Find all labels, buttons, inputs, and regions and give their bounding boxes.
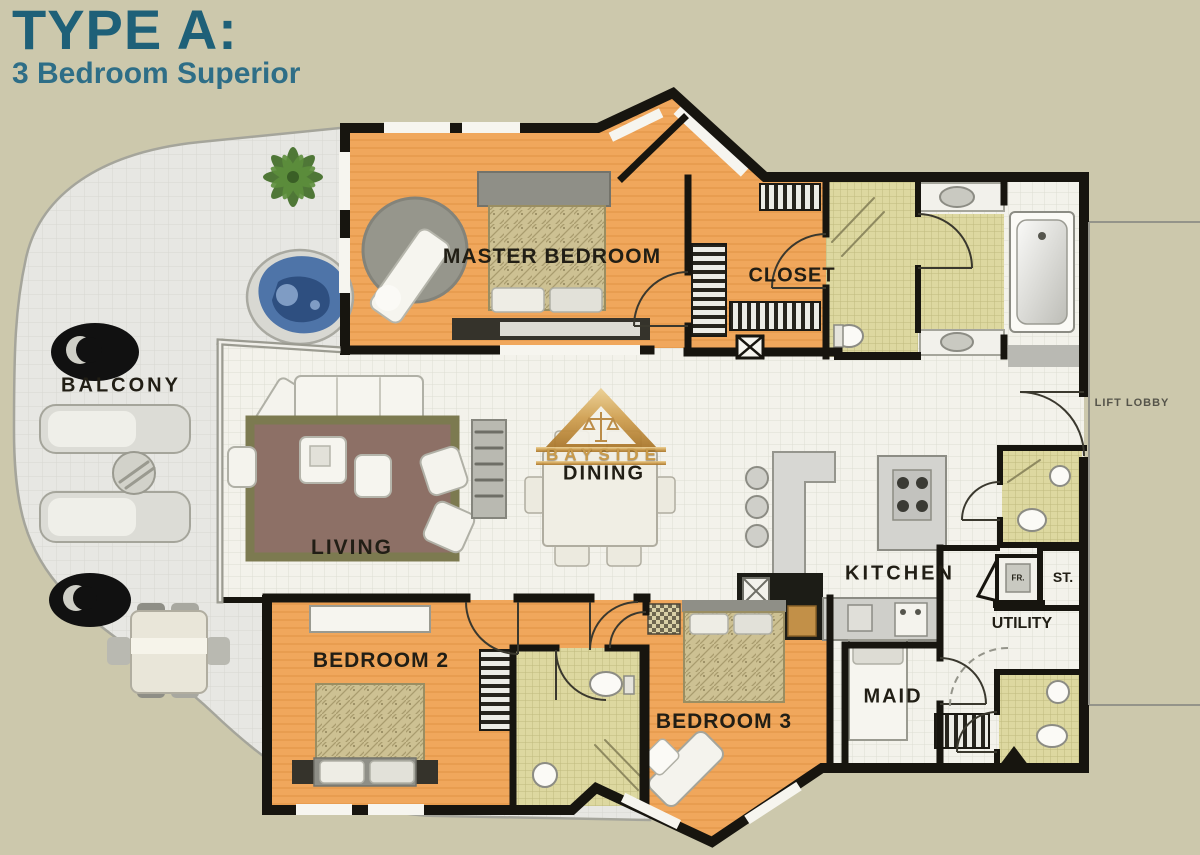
fridge-label: FR. (1012, 574, 1025, 583)
living-label: LIVING (311, 536, 393, 560)
bedroom2-bath-floor (513, 648, 643, 806)
master-bedroom-label: MASTER BEDROOM (443, 245, 661, 269)
bedroom2-label: BEDROOM 2 (313, 649, 449, 673)
utility-label: UTILITY (992, 615, 1052, 633)
dining-label: DINING (563, 463, 645, 486)
spa-jacuzzi (247, 250, 353, 344)
floorplan-page: TYPE A: 3 Bedroom Superior MASTER BEDROO… (0, 0, 1200, 855)
floorplan-drawing (0, 0, 1200, 855)
kitchen-label: KITCHEN (845, 563, 955, 586)
store-label: ST. (1053, 569, 1073, 585)
balcony-label: BALCONY (61, 375, 181, 398)
lift-lobby-label: LIFT LOBBY (1095, 397, 1170, 409)
page-title: TYPE A: (12, 0, 300, 60)
bedroom3-label: BEDROOM 3 (656, 710, 792, 734)
title-block: TYPE A: 3 Bedroom Superior (12, 0, 300, 90)
palm-tree (263, 147, 323, 207)
page-subtitle: 3 Bedroom Superior (12, 58, 300, 90)
planter-top (51, 323, 139, 381)
maid-label: MAID (863, 686, 922, 709)
closet-label: CLOSET (748, 265, 835, 288)
powder-room-floor (1002, 450, 1082, 544)
planter-bottom (49, 573, 131, 627)
